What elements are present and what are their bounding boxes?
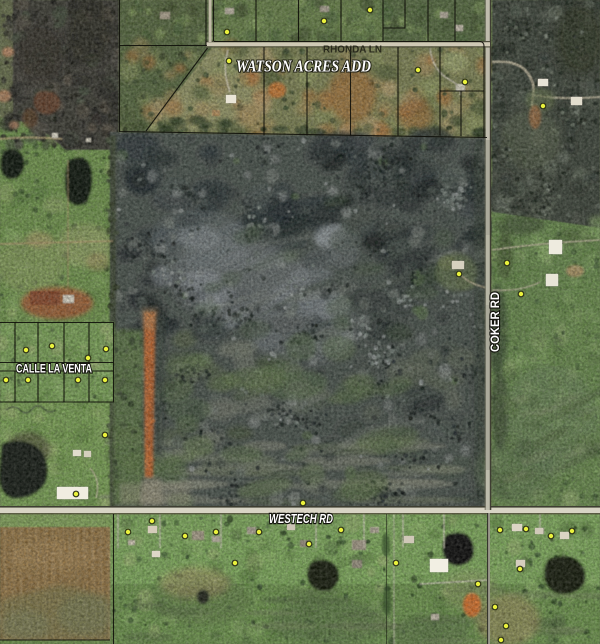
svg-text:CALLE LA VENTA: CALLE LA VENTA xyxy=(16,364,92,376)
svg-text:WESTECH RD: WESTECH RD xyxy=(269,512,333,526)
svg-text:WATSON ACRES ADD: WATSON ACRES ADD xyxy=(236,57,371,76)
svg-text:COKER RD: COKER RD xyxy=(488,292,502,352)
svg-text:RHONDA LN: RHONDA LN xyxy=(323,45,382,56)
